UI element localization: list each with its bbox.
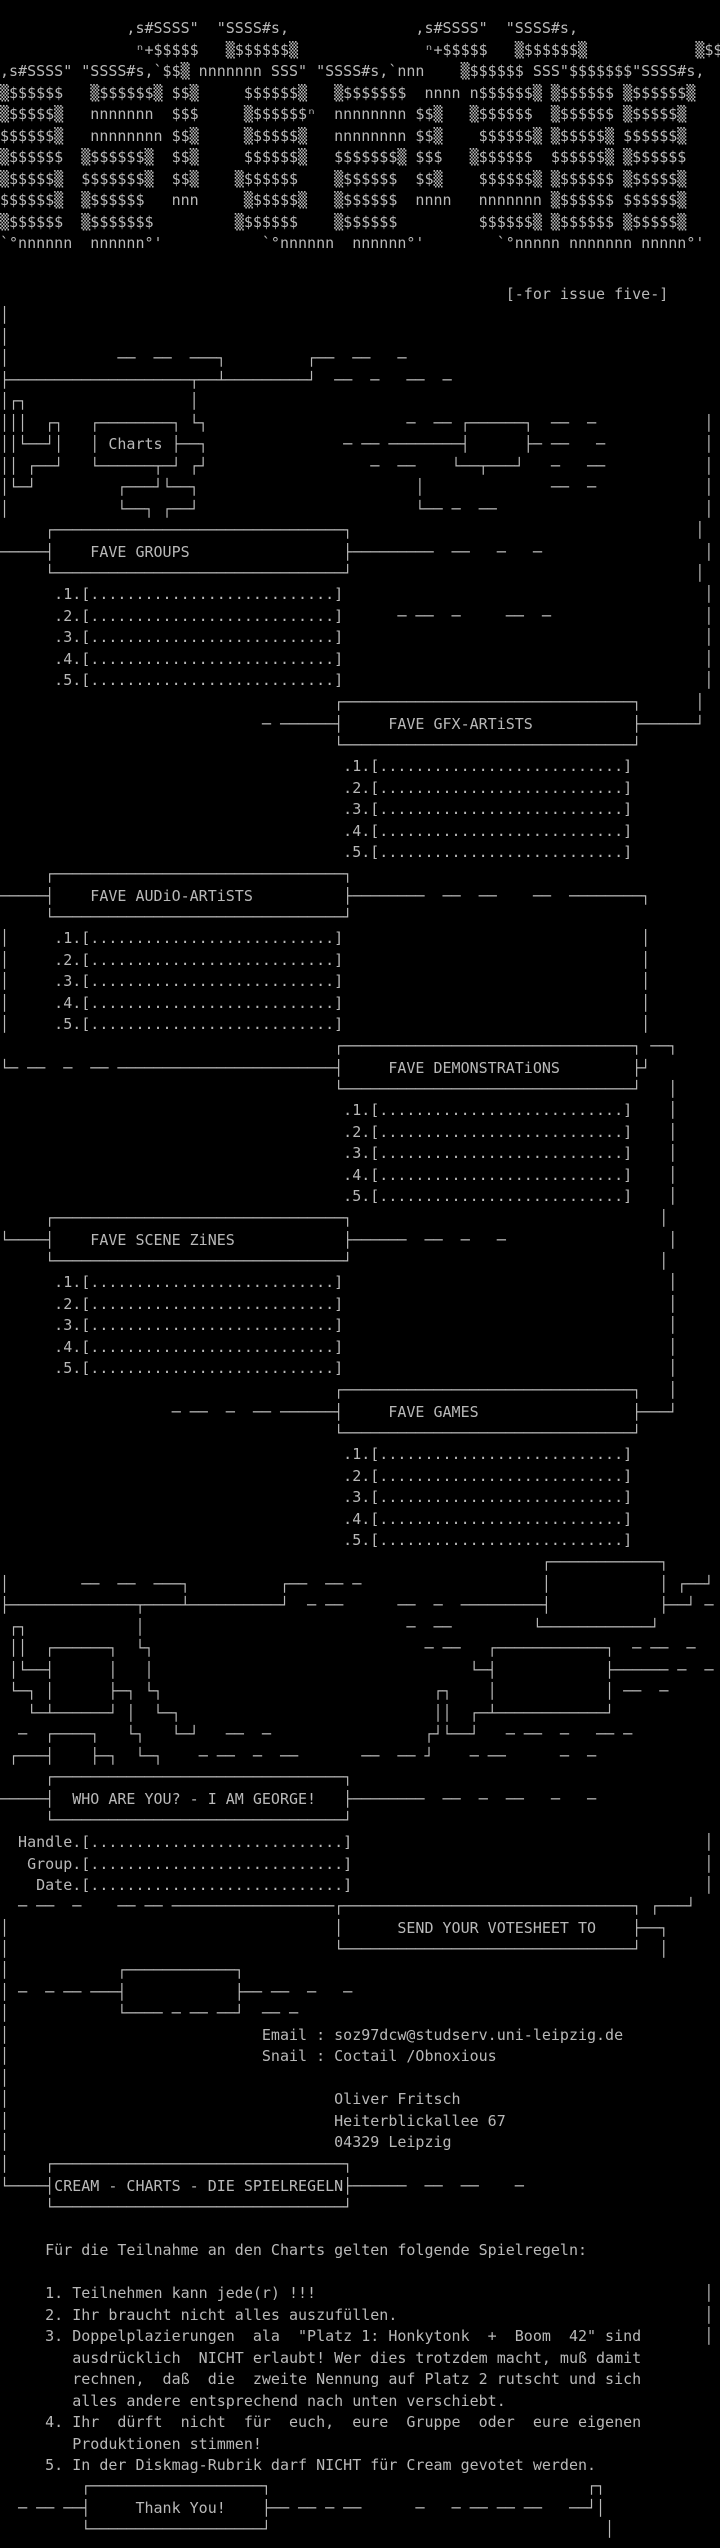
fave-games-vote-slots: .1.[...........................] .2.[...…: [0, 1444, 632, 1552]
fave-audio-header-box: ┌────────────────────────────────┐ ─────…: [0, 864, 650, 929]
fave-games-header-box: ┌────────────────────────────────┐ │ ─ ─…: [0, 1380, 677, 1445]
spielregeln-header-box: │ ┌────────────────────────────────┐ └──…: [0, 2154, 524, 2219]
fave-zines-vote-slots: .1.[...........................] │ .2.[.…: [0, 1272, 677, 1380]
fave-audio-vote-slots: │ .1.[...........................] │ │ .…: [0, 928, 650, 1036]
cream-ascii-logo: ,s#SSSS" "SSSS#s, ,s#SSSS" "SSSS#s, ⁿ+$$…: [0, 18, 720, 255]
spielregeln-rules-text: Für die Teilnahme an den Charts gelten f…: [0, 2240, 713, 2477]
charts-label-box: │┌┐ │ │││ ┌┐ ┌────────┐ └┐ ─ ── ┌──────┐…: [0, 391, 713, 520]
fave-gfx-vote-slots: .1.[...........................] .2.[...…: [0, 756, 632, 864]
who-are-you-header-box: ┌────────────────────────────────┐ ─────…: [0, 1767, 596, 1832]
contact-address-block: │ ┌────────────┐ │ ─ ─ ── ───┤ ├── ── ─ …: [0, 1960, 623, 2154]
thank-you-box: ┌───────────────────┐ ┌┐ ─ ── ──┤ Thank …: [0, 2476, 614, 2541]
identity-fields: Handle.[............................] │ …: [0, 1832, 713, 1897]
fave-gfx-header-box: ┌────────────────────────────────┐ │ ─ ─…: [0, 692, 704, 757]
fave-groups-vote-slots: .1.[...........................] │ .2.[.…: [0, 584, 713, 692]
fave-demos-header-box: ┌────────────────────────────────┐ ──┐ └…: [0, 1036, 677, 1101]
decor-lines-top: │ │ │ ── ── ───┐ ┌── ── ─ ├─────────────…: [0, 305, 452, 391]
issue-note: [-for issue five-]: [0, 284, 668, 306]
send-votesheet-header-box: ─ ── ─ ── ── ──────────────────┌────────…: [0, 1896, 695, 1961]
fave-zines-header-box: ┌────────────────────────────────┐ │ └──…: [0, 1208, 677, 1273]
votesheet-document: ,s#SSSS" "SSSS#s, ,s#SSSS" "SSSS#s, ⁿ+$$…: [0, 0, 720, 2548]
fave-demos-vote-slots: .1.[...........................] │ .2.[.…: [0, 1100, 677, 1208]
decor-lines-mid: ┌────────────┐ │ ── ── ───┐ ┌── ── ─ │ │…: [0, 1552, 713, 1767]
fave-groups-header-box: ┌────────────────────────────────┐ │ ───…: [0, 520, 713, 585]
